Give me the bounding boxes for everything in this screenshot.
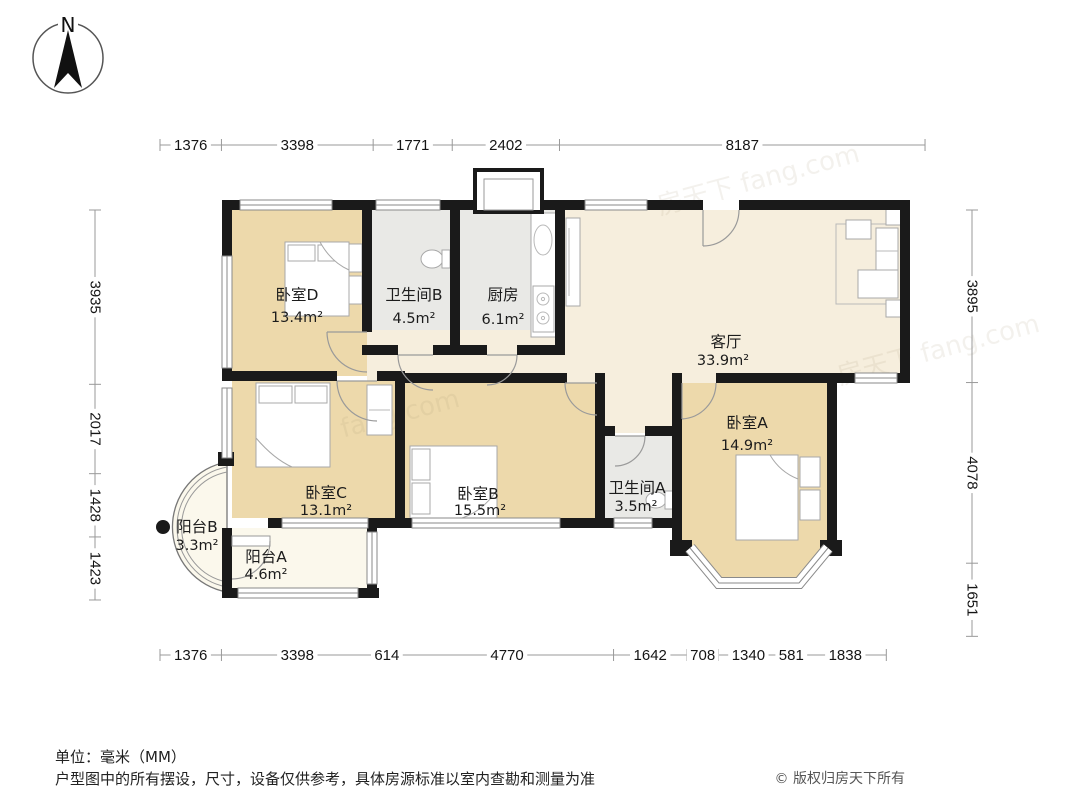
window xyxy=(614,518,652,528)
room-name-bath-b: 卫生间B xyxy=(385,286,442,304)
room-area-bath-b: 4.5m² xyxy=(393,311,436,327)
dim-label-left-1: 2017 xyxy=(87,412,104,445)
fridge xyxy=(566,218,580,306)
room-area-bedroom-d: 13.4m² xyxy=(271,310,323,326)
bed-b-pillow xyxy=(412,449,430,480)
room-area-bedroom-a: 14.9m² xyxy=(721,438,773,454)
entry-opening xyxy=(703,200,739,210)
window xyxy=(367,532,377,584)
room-area-balcony-b: 3.3m² xyxy=(176,538,219,554)
side-table xyxy=(886,208,902,225)
chaise xyxy=(858,270,898,298)
nightstand xyxy=(800,457,820,487)
dim-label-top-2: 1771 xyxy=(396,137,429,154)
floorplan-drawing: 房天下 fang.com 房天下 fang.com 房天下 fang.com xyxy=(0,0,1066,800)
dim-label-bottom-3: 4770 xyxy=(490,647,523,664)
copyright-text: © 版权归房天下所有 xyxy=(775,768,905,788)
room-name-bedroom-d: 卧室D xyxy=(276,286,319,304)
dim-label-left-0: 3935 xyxy=(87,280,104,313)
bed-b-pillow xyxy=(412,483,430,514)
compass: N xyxy=(33,13,103,93)
bed-d-pillow xyxy=(288,245,315,261)
nightstand xyxy=(800,490,820,520)
dim-label-left-2: 1428 xyxy=(86,489,103,522)
dim-left: 3935201714281423 xyxy=(86,210,103,600)
bed-c-pillow xyxy=(295,386,327,403)
dim-label-right-0: 3895 xyxy=(964,280,981,313)
hallway-south-floor xyxy=(600,375,672,433)
dim-label-bottom-4: 1642 xyxy=(634,647,667,664)
room-area-living: 33.9m² xyxy=(697,353,749,369)
window xyxy=(855,373,897,383)
armchair xyxy=(846,220,871,239)
window xyxy=(412,518,560,528)
dim-right: 389540781651 xyxy=(964,210,981,636)
room-area-balcony-a: 4.6m² xyxy=(245,567,288,583)
compass-north-label: N xyxy=(61,13,76,37)
balcony-b-post xyxy=(156,520,170,534)
dim-label-bottom-1: 3398 xyxy=(281,647,314,664)
toilet-a-tank xyxy=(665,491,673,509)
room-name-bedroom-b: 卧室B xyxy=(457,485,499,503)
dim-label-bottom-2: 614 xyxy=(374,647,399,664)
dim-bottom: 137633986144770164270813405811838 xyxy=(160,647,886,664)
bed-c-pillow xyxy=(259,386,292,403)
bathroom-b-floor xyxy=(367,205,455,350)
room-area-bedroom-b: 15.5m² xyxy=(454,503,506,519)
disclaimer-text: 户型图中的所有摆设，尺寸，设备仅供参考，具体房源标准以室内查勘和测量为准 xyxy=(55,768,595,789)
side-table xyxy=(886,300,902,317)
dim-label-bottom-7: 581 xyxy=(779,647,804,664)
dim-label-bottom-8: 1838 xyxy=(829,647,862,664)
dim-label-right-2: 1651 xyxy=(964,583,981,616)
dim-label-top-0: 1376 xyxy=(174,137,207,154)
nightstand xyxy=(349,276,362,304)
room-area-kitchen: 6.1m² xyxy=(482,312,525,328)
room-name-bedroom-c: 卧室C xyxy=(305,484,347,502)
window xyxy=(376,200,440,210)
window xyxy=(222,388,232,458)
room-name-balcony-b: 阳台B xyxy=(176,518,218,536)
window xyxy=(238,588,358,598)
room-name-bath-a: 卫生间A xyxy=(608,479,666,497)
window xyxy=(282,518,368,528)
flue-box xyxy=(475,170,542,212)
dim-label-right-1: 4078 xyxy=(964,456,981,489)
window xyxy=(585,200,647,210)
room-area-bath-a: 3.5m² xyxy=(615,499,658,515)
dim-label-bottom-6: 1340 xyxy=(732,647,765,664)
dim-label-top-4: 8187 xyxy=(726,137,759,154)
room-area-bedroom-c: 13.1m² xyxy=(300,503,352,519)
toilet-b xyxy=(421,250,443,268)
compass-needle xyxy=(54,30,82,88)
unit-label: 单位：毫米（MM） xyxy=(55,746,186,767)
dim-label-bottom-0: 1376 xyxy=(174,647,207,664)
room-name-balcony-a: 阳台A xyxy=(245,548,287,566)
floorplan-page: 房天下 fang.com 房天下 fang.com 房天下 fang.com xyxy=(0,0,1066,800)
window xyxy=(222,256,232,368)
window xyxy=(240,200,332,210)
room-name-living: 客厅 xyxy=(710,333,741,351)
dim-label-bottom-5: 708 xyxy=(690,647,715,664)
room-name-kitchen: 厨房 xyxy=(487,286,518,304)
dim-label-top-3: 2402 xyxy=(489,137,522,154)
room-name-bedroom-a: 卧室A xyxy=(726,414,768,432)
dim-label-top-1: 3398 xyxy=(281,137,314,154)
nightstand xyxy=(349,244,362,272)
toilet-b-tank xyxy=(442,250,450,268)
dim-label-left-3: 1423 xyxy=(87,552,104,585)
